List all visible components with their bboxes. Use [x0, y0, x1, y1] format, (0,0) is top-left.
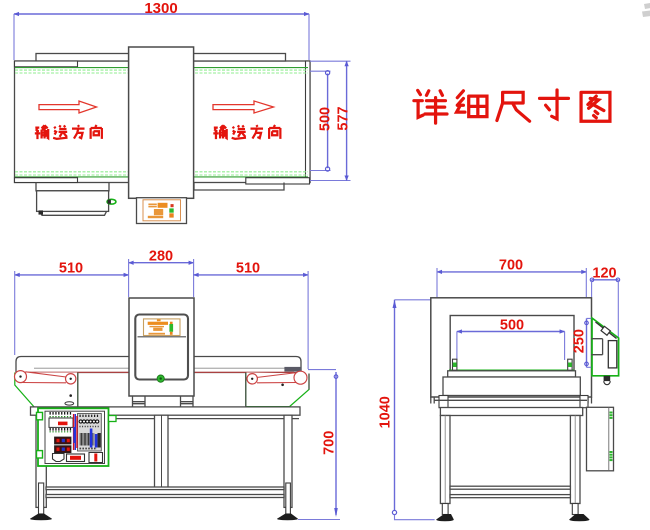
svg-text:1040: 1040: [378, 396, 394, 428]
svg-text:700: 700: [499, 258, 523, 274]
svg-text:510: 510: [59, 261, 83, 277]
svg-text:250: 250: [572, 329, 588, 353]
svg-text:120: 120: [592, 265, 616, 281]
svg-text:1300: 1300: [144, 0, 177, 17]
svg-text:280: 280: [149, 249, 173, 265]
svg-text:510: 510: [236, 261, 260, 277]
svg-text:700: 700: [322, 431, 338, 455]
svg-text:500: 500: [500, 317, 524, 333]
svg-text:577: 577: [336, 106, 352, 130]
svg-text:500: 500: [318, 107, 334, 131]
